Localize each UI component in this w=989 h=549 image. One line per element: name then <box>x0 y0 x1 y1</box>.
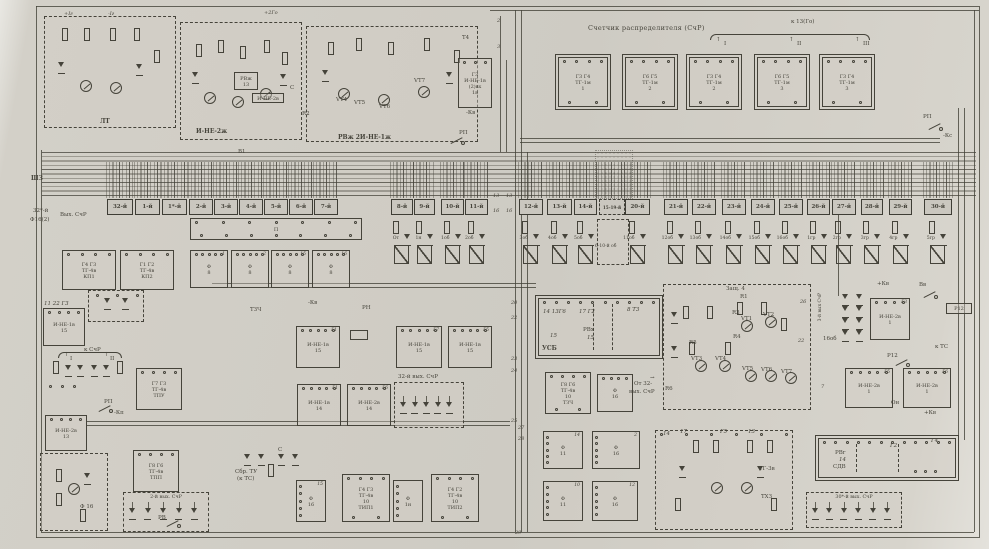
cell-10-й: 10-й <box>441 199 464 215</box>
pin <box>469 329 472 332</box>
label-т4: Т4 <box>462 35 469 41</box>
resistor <box>810 221 816 234</box>
label-r3: R3 <box>732 310 740 316</box>
resistor <box>240 46 246 59</box>
label-r6: R6 <box>665 386 673 392</box>
block-tg-2: Г6 Г5ТГ-1м2 <box>625 57 675 107</box>
pin <box>774 60 777 63</box>
label-ф-16: Ф 16 <box>80 504 93 510</box>
pin <box>301 253 304 256</box>
block-i-ne-1v-15L: И-НЕ-1в15 <box>43 308 85 346</box>
diode <box>412 402 418 407</box>
diode <box>842 294 848 299</box>
label--2го: +2Го <box>264 10 278 16</box>
label--кв: -Кв <box>466 110 475 116</box>
contact-label: 13об <box>677 236 701 241</box>
block-text: Г3 Г4ТГ-1м1 <box>559 58 607 106</box>
label-от-32-: От 32- <box>634 381 652 387</box>
pin <box>588 60 591 63</box>
resistor <box>282 52 288 65</box>
pin <box>347 477 350 480</box>
pin <box>762 60 765 63</box>
block-i-ne-2v-1c: И-НЕ-2в1Г6 <box>903 368 951 408</box>
pin <box>325 387 328 390</box>
pin <box>563 60 566 63</box>
switch-3 <box>923 290 938 299</box>
pin <box>868 371 871 374</box>
cell-21-й: 21-й <box>664 199 688 215</box>
block-f8-4: Ф816 <box>312 250 350 288</box>
pin <box>60 418 63 421</box>
diode <box>446 72 452 77</box>
pin <box>276 253 279 256</box>
diode <box>191 508 197 513</box>
resistor <box>707 306 713 319</box>
diode <box>280 74 286 79</box>
block-f16-c: Ф162 <box>592 431 640 469</box>
pin <box>726 101 729 104</box>
block-text: Г3И-НЕ-1в(2)вх1в <box>459 59 491 107</box>
diode <box>160 508 166 513</box>
diode <box>292 454 298 459</box>
label-ii: II <box>797 41 801 47</box>
cell-22-й: 22-й <box>692 199 716 215</box>
pin <box>275 234 278 237</box>
block-i-ne-1v-15c: И-НЕ-1в15Г5 <box>448 326 492 368</box>
pin <box>555 408 558 411</box>
diode <box>842 330 848 335</box>
pin <box>710 433 713 436</box>
resistor <box>629 221 635 234</box>
contact-box <box>811 245 826 264</box>
block-text: И-НЕ-1в15 <box>449 327 491 367</box>
pin <box>628 301 631 304</box>
block-tip2: Г4 Г2ТГ-4в10ТИП2 <box>431 474 479 522</box>
block-tzch-10: Г8 Г6ТГ-4в10ТЗЧ <box>545 372 591 414</box>
diode <box>77 365 83 370</box>
bus-ticks <box>106 162 134 198</box>
pin <box>317 329 320 332</box>
transistor <box>418 86 430 98</box>
label--: ↑ <box>789 37 794 43</box>
pin <box>171 453 174 456</box>
pin <box>69 418 72 421</box>
wire-number-29: 29 <box>515 530 521 536</box>
bus-ticks <box>188 162 214 198</box>
contact-gap-label: 6-10-й об <box>595 244 616 250</box>
pin <box>572 375 575 378</box>
contact-box <box>469 245 484 264</box>
block-tg-1: Г3 Г4ТГ-1м1 <box>558 57 608 107</box>
contact-label: 1об <box>426 236 450 241</box>
wire-number-22: 22 <box>511 315 517 321</box>
divider <box>612 304 613 350</box>
divider <box>856 444 857 472</box>
diode <box>192 72 198 77</box>
pin <box>924 470 927 473</box>
block-f16-a: Ф16 <box>597 374 633 412</box>
bus-ticks <box>213 162 239 198</box>
label-vt7: VT7 <box>414 78 425 84</box>
label-15: 15 <box>550 333 557 339</box>
pin <box>67 253 70 256</box>
label-r5: R5 <box>689 340 697 346</box>
label-16об: 16об <box>823 336 837 342</box>
pin <box>352 516 355 519</box>
pin <box>546 436 549 439</box>
contact-box <box>864 245 879 264</box>
block-i-ne-1v-14: И-НЕ-1в14Г1 <box>297 384 341 426</box>
pin <box>731 60 734 63</box>
diode <box>400 402 406 407</box>
pin <box>655 60 658 63</box>
diode <box>122 298 128 303</box>
diode <box>244 454 250 459</box>
label-i: I <box>724 41 726 47</box>
pin <box>318 387 321 390</box>
label-с: С <box>278 447 282 453</box>
diode <box>588 234 594 239</box>
resistor <box>393 221 399 234</box>
block-text: Г4 Г2ТГ-4в10ТИП2 <box>432 475 478 521</box>
label-тзч: ТЗЧ <box>250 307 261 313</box>
label-рн: РН <box>362 305 371 311</box>
pin <box>409 329 412 332</box>
contact-box <box>668 245 683 264</box>
transistor <box>204 92 216 104</box>
pin <box>370 477 373 480</box>
label-лт: ЛТ <box>100 119 110 125</box>
pin <box>94 253 97 256</box>
pin <box>943 371 946 374</box>
label-и-не-2ж: И-НЕ-2ж <box>196 129 227 135</box>
label--: ↑ <box>64 352 69 358</box>
resistor <box>551 221 557 234</box>
pin <box>396 485 399 488</box>
pin <box>352 387 355 390</box>
block-kp1: Г4 Г3ТГ-4вКП1 <box>62 250 116 290</box>
diode <box>423 402 429 407</box>
pin <box>885 371 888 374</box>
label-r1: R1 <box>740 294 748 300</box>
cell-9-й: 9-й <box>414 199 435 215</box>
bus-ticks <box>663 162 689 198</box>
pin <box>595 442 598 445</box>
label-vt4: VT4 <box>715 356 726 362</box>
label-3-й-вых-счр: 3-й вых СчР <box>818 293 824 321</box>
pin <box>595 486 598 489</box>
pin <box>301 221 304 224</box>
contact-label: 2гр <box>817 236 841 241</box>
bus-ticks <box>313 162 339 198</box>
block-text: Г8 Г6ТГ-4вТПП <box>134 451 178 491</box>
cell-29-й: 29-й <box>889 199 912 215</box>
block-text: И-НЕ-2в <box>253 94 283 102</box>
diode <box>940 234 946 239</box>
pin <box>195 221 198 224</box>
contact-box <box>755 245 770 264</box>
label-тхз: ТХЗ <box>761 494 772 500</box>
wire-h <box>520 138 940 139</box>
block-corner-label: 2 <box>634 433 637 438</box>
label-г2: Г2 <box>890 443 897 449</box>
label--кв: -Кв <box>308 300 317 306</box>
label-рвж-2и-не-1ж: РВж 2И-НЕ-1ж <box>338 135 391 141</box>
resistor <box>154 50 160 63</box>
block-i-ne-1v-15a: И-НЕ-1в15Г1 <box>296 326 340 368</box>
pin <box>864 60 867 63</box>
label-ф16-2-: Ф16(2) <box>30 217 49 223</box>
wire-number-13: 13 <box>506 193 512 199</box>
block-f8-1: Ф81 <box>190 250 228 288</box>
pin <box>448 477 451 480</box>
contact-label: 2об <box>450 236 474 241</box>
block-i-ne-2v-1b: И-НЕ-2в1Г5 <box>845 368 893 408</box>
wire-number-7: 7 <box>821 384 824 390</box>
pin <box>77 311 80 314</box>
pin <box>434 329 437 332</box>
pin <box>595 455 598 458</box>
contact-label: 12об <box>649 236 673 241</box>
pin <box>360 387 363 390</box>
pin <box>368 387 371 390</box>
contact-box <box>930 245 945 264</box>
pin <box>73 385 76 388</box>
pin <box>859 371 862 374</box>
resistor <box>695 221 701 234</box>
schematic-title: Счетчик распределителя (СчР) <box>588 25 705 31</box>
bus-ticks <box>263 162 289 198</box>
contact-label: 5об <box>559 236 583 241</box>
label-vt1: VT1 <box>741 316 752 322</box>
pin <box>336 253 339 256</box>
pin <box>139 253 142 256</box>
wire-number-23: 23 <box>511 356 517 362</box>
pin <box>299 514 302 517</box>
resistor <box>356 38 362 51</box>
block-tg-5: Г3 Г4ТГ-1м3 <box>822 57 872 107</box>
label-vt4: VT4 <box>336 97 347 103</box>
diode <box>446 402 452 407</box>
block-f8-3: Ф815 <box>271 250 309 288</box>
diode <box>278 454 284 459</box>
pin <box>903 441 906 444</box>
label-11-22-г3: 11 22 Г3 <box>44 301 69 307</box>
switch-0 <box>450 136 465 145</box>
pin <box>108 253 111 256</box>
bus-ticks <box>923 162 953 198</box>
bus-ticks <box>464 162 489 198</box>
contact-label: 1гр <box>792 236 816 241</box>
pin <box>583 375 586 378</box>
wire-v <box>979 6 980 538</box>
pin <box>208 253 211 256</box>
block-text: И-НЕ-1в14 <box>298 385 340 425</box>
label-он: Он <box>891 400 899 406</box>
transistor <box>110 82 122 94</box>
block-text: И-НЕ-1в15 <box>44 309 84 345</box>
pin <box>546 500 549 503</box>
block-tpp: Г8 Г6ТГ-4вТПП <box>133 450 179 492</box>
block-corner-label: 15 <box>317 482 323 487</box>
label-к-тс: к ТС <box>935 344 948 350</box>
wire-h <box>41 532 974 533</box>
block-text: И-НЕ-2в13 <box>46 416 86 450</box>
diode <box>856 330 862 335</box>
wire-v <box>36 6 37 538</box>
pin <box>328 221 331 224</box>
label-r2: R2 <box>302 111 310 117</box>
pin <box>484 61 487 64</box>
label-г4: Г4 <box>931 438 938 444</box>
resistor <box>683 306 689 319</box>
pin <box>595 436 598 439</box>
contact-label: От <box>375 236 399 241</box>
pin <box>96 294 99 297</box>
pin <box>546 449 549 452</box>
pin <box>595 101 598 104</box>
block-text: Г6 Г5ТГ-1м2 <box>626 58 674 106</box>
label-vt7: VT7 <box>781 369 792 375</box>
pin <box>839 60 842 63</box>
pin <box>261 253 264 256</box>
pin <box>876 371 879 374</box>
pin <box>349 234 352 237</box>
cell-15-19-й: 15-19-й <box>599 199 625 215</box>
pin <box>149 453 152 456</box>
pin <box>595 449 598 452</box>
block-i-ne-1v-15b: И-НЕ-1в15Г7 <box>396 326 442 368</box>
pin <box>436 477 439 480</box>
pin <box>250 234 253 237</box>
pin <box>642 60 645 63</box>
block-i-ne-2v-1a: И-НЕ-2в1Г3 <box>870 298 910 340</box>
resistor <box>84 28 90 41</box>
block-i-ne-2v-14: И-НЕ-2в14Г6 <box>347 384 391 426</box>
label--iг: +Iг <box>64 11 73 17</box>
pin <box>616 301 619 304</box>
block-text: И-НЕ-2в1 <box>871 299 909 339</box>
block-f11-a: Ф1114 <box>543 431 583 469</box>
transistor <box>741 482 753 494</box>
switch-5 <box>166 519 181 528</box>
resistor <box>328 42 334 55</box>
switch-4 <box>895 358 910 367</box>
pin <box>579 301 582 304</box>
cell-11-й: 11-й <box>465 199 488 215</box>
pin <box>625 377 628 380</box>
label--: ↑ <box>104 352 109 358</box>
label--iг: -Iг <box>108 11 114 17</box>
block-tpu: Г7 Г3ТГ-4вТПУ <box>136 368 182 410</box>
diode <box>679 466 685 471</box>
label-17-г2: 17 Г2 <box>579 309 595 315</box>
label--кв: +Кв <box>924 410 936 416</box>
pin <box>546 442 549 445</box>
label-рвг: РВг <box>835 450 846 456</box>
cell-4-й: 4-й <box>239 199 263 215</box>
pin <box>396 492 399 495</box>
block-text: И-НЕ-2в14 <box>348 385 390 425</box>
diode <box>903 234 909 239</box>
divider <box>898 444 899 472</box>
pin <box>396 514 399 517</box>
pin <box>827 60 830 63</box>
label-32-й: 32*-й <box>33 208 48 214</box>
resistor <box>835 221 841 234</box>
pin <box>852 60 855 63</box>
pin <box>662 101 665 104</box>
pin <box>575 60 578 63</box>
cell-2-й: 2-й <box>189 199 213 215</box>
pin <box>295 253 298 256</box>
pin <box>694 60 697 63</box>
block-kp2: Г1 Г2ТГ-4вКП2 <box>120 250 174 290</box>
pin <box>275 221 278 224</box>
bus-ticks <box>778 162 804 198</box>
pin <box>595 506 598 509</box>
block-corner-label: 14 <box>574 433 580 438</box>
label-к-счр: к СчР <box>84 347 101 353</box>
label-14: 14 <box>663 431 670 437</box>
label-13: 13 <box>748 429 755 435</box>
label--: ↑ <box>855 37 860 43</box>
pin <box>466 516 469 519</box>
pin <box>893 301 896 304</box>
block-text: Р12 <box>947 304 971 313</box>
label-14: 14 <box>839 457 846 463</box>
label--: ↑ <box>716 37 721 43</box>
pin <box>902 301 905 304</box>
resistor <box>424 38 430 51</box>
contact-gap <box>597 219 629 265</box>
block-tg-4: Г6 Г5ТГ-1м3 <box>757 57 807 107</box>
resistor <box>117 361 123 374</box>
cell-13-й: 13-й <box>547 199 572 215</box>
block-corner-label: 10 <box>574 483 580 488</box>
cell-7-й: 7-й <box>314 199 338 215</box>
contact-box <box>836 245 851 264</box>
resistor <box>892 221 898 234</box>
pin <box>242 253 245 256</box>
cell-6-й: 6-й <box>289 199 313 215</box>
resistor <box>196 44 202 57</box>
pin <box>595 493 598 496</box>
pin <box>359 477 362 480</box>
pin <box>354 221 357 224</box>
pin <box>160 453 163 456</box>
pin <box>787 60 790 63</box>
pin <box>914 470 917 473</box>
pin <box>255 253 258 256</box>
pin <box>476 329 479 332</box>
diode <box>58 62 64 67</box>
wire-number-24: 24 <box>511 368 517 374</box>
pin <box>382 477 385 480</box>
cell-30-й: 30-й <box>924 199 952 215</box>
diode <box>842 318 848 323</box>
cell-5-й: 5-й <box>264 199 288 215</box>
block-f16-d: Ф1612 <box>592 481 638 521</box>
diode <box>640 234 646 239</box>
pin <box>555 301 558 304</box>
pin <box>299 500 302 503</box>
label--кп: -Кп <box>114 410 124 416</box>
diode <box>842 306 848 311</box>
label--кв: +Кв <box>877 281 889 287</box>
pin <box>441 516 444 519</box>
block-text: Г3 Г4ТГ-1м2 <box>690 58 738 106</box>
